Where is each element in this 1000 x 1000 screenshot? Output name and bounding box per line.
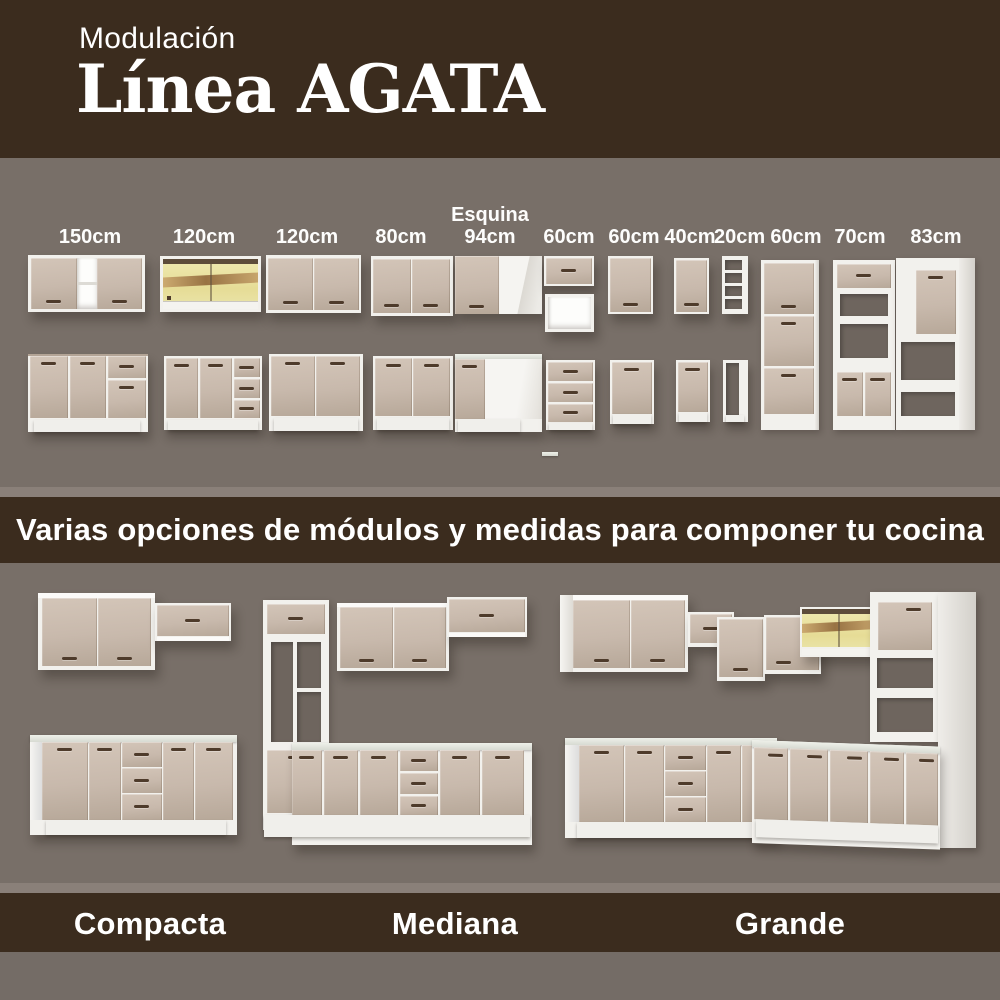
door <box>324 750 358 815</box>
door <box>440 750 480 815</box>
wall-cabinet-60 <box>608 256 653 314</box>
door <box>678 362 708 412</box>
door <box>837 372 863 416</box>
open-shelf <box>77 258 97 309</box>
config-label-compacta: Compacta <box>55 906 245 942</box>
open-niche <box>877 658 933 688</box>
countertop <box>565 738 777 745</box>
module-size-label: 120cm <box>255 202 359 248</box>
door <box>631 600 685 668</box>
drawer <box>122 794 162 820</box>
door <box>166 358 198 418</box>
door <box>413 358 450 416</box>
drawer <box>234 400 260 418</box>
tall-cabinet-60 <box>761 260 819 430</box>
door <box>292 750 322 815</box>
config-label-mediana: Mediana <box>360 906 550 942</box>
door <box>89 742 121 820</box>
countertop-extension <box>542 452 558 456</box>
door <box>719 619 763 677</box>
door <box>42 742 88 820</box>
open-niche <box>877 698 933 732</box>
door <box>830 750 868 823</box>
door <box>625 745 664 822</box>
drawer <box>122 768 162 793</box>
door <box>573 600 630 668</box>
door <box>200 358 232 418</box>
toe-kick <box>726 415 744 422</box>
drawer <box>665 745 706 770</box>
module-size-label: 150cm <box>30 202 150 248</box>
open-shelf-box-60 <box>545 294 594 332</box>
open-shelf-unit-20 <box>722 256 748 314</box>
door <box>271 356 315 416</box>
door <box>268 258 313 310</box>
corner-wall-cabinet-94 <box>455 256 542 314</box>
base-cabinet-60 <box>610 360 654 424</box>
module-size-label: 120cm <box>153 202 255 248</box>
toe-kick <box>549 423 592 430</box>
base-cabinet-120 <box>269 354 363 431</box>
modules-section: 150cm 120cm 120cm 80cm Esquina94cm 60cm … <box>0 158 1000 497</box>
drawer <box>400 750 438 771</box>
base-run-right <box>752 740 940 850</box>
wall-cabinet-80 <box>371 256 453 316</box>
toe-kick <box>168 420 258 430</box>
module-size-label: 70cm <box>829 202 891 248</box>
drawer <box>122 742 162 767</box>
oven-niche <box>840 294 888 316</box>
base-cabinet-150 <box>28 354 148 432</box>
door <box>108 380 146 418</box>
countertop <box>30 735 237 742</box>
door <box>373 259 411 313</box>
corner-panel <box>485 359 542 419</box>
door <box>916 270 956 334</box>
drawer <box>234 379 260 398</box>
corner-base-cabinet-94 <box>455 354 542 432</box>
oven-niche <box>840 324 888 358</box>
open-shelf <box>548 297 591 329</box>
door <box>707 745 741 822</box>
shelf-niche <box>725 286 742 296</box>
base-run-left <box>565 738 777 838</box>
toe-kick <box>377 418 449 430</box>
toe-kick <box>577 822 767 838</box>
door <box>316 356 360 416</box>
door <box>394 607 446 668</box>
base-run <box>292 743 532 845</box>
header-band: Modulación Línea AGATA <box>0 0 1000 158</box>
door <box>314 258 359 310</box>
door <box>790 748 828 821</box>
shelf-niche <box>725 260 742 270</box>
wall-extension-cabinet <box>155 603 231 641</box>
module-size-label: 60cm <box>541 202 597 248</box>
drawer-base-cabinet-60 <box>546 360 595 430</box>
drawer <box>665 797 706 822</box>
door <box>97 258 142 309</box>
drawer <box>548 404 593 422</box>
tall-tower-front <box>870 592 940 742</box>
drawer <box>400 773 438 794</box>
base-cabinet-120-drawers <box>164 356 262 430</box>
configuration-labels-band: Compacta Mediana Grande <box>0 893 1000 952</box>
door <box>610 258 651 312</box>
door <box>375 358 412 416</box>
side-panel <box>815 260 819 430</box>
wall-cabinet <box>560 595 688 672</box>
side-panel <box>30 742 42 820</box>
tall-tower-side-panel <box>938 592 976 848</box>
drawer <box>234 358 260 377</box>
open-niche <box>726 363 739 415</box>
door <box>340 607 393 668</box>
countertop <box>292 743 532 750</box>
door <box>30 356 68 418</box>
page-title: Línea AGATA <box>76 50 544 128</box>
door <box>764 368 814 414</box>
wall-cabinet-40 <box>674 258 709 314</box>
door <box>906 752 938 825</box>
shelf-niche <box>725 273 742 283</box>
door <box>98 598 151 666</box>
door <box>70 356 106 418</box>
door <box>163 742 194 820</box>
door <box>865 372 891 416</box>
module-size-label: 20cm <box>714 202 764 248</box>
toe-kick <box>458 419 520 432</box>
door <box>360 750 398 815</box>
side-panel <box>959 258 975 430</box>
toe-kick <box>274 418 358 431</box>
door <box>412 259 450 313</box>
door <box>612 362 652 414</box>
door <box>42 598 97 666</box>
glass-wall-cabinet-120 <box>160 256 261 312</box>
toe-kick <box>46 820 226 835</box>
wall-cabinet <box>337 603 449 671</box>
corner-wall-cabinet <box>717 617 765 681</box>
drawer <box>400 796 438 815</box>
drawer <box>665 771 706 796</box>
wall-cabinet-150 <box>28 255 145 312</box>
door <box>267 604 325 634</box>
fridge-niche <box>901 342 955 380</box>
wall-cabinet <box>38 593 155 670</box>
door <box>157 605 229 636</box>
door <box>449 599 525 632</box>
door <box>31 258 77 309</box>
module-size-label: 83cm <box>898 202 974 248</box>
module-size-label: 40cm <box>664 202 716 248</box>
toe-kick <box>679 412 707 422</box>
door <box>482 750 524 815</box>
module-size-label: 60cm <box>606 202 662 248</box>
config-label-grande: Grande <box>695 906 885 942</box>
door <box>195 742 233 820</box>
toe-kick <box>613 414 651 424</box>
side-panel <box>565 745 579 822</box>
base-cabinet-80 <box>373 356 453 430</box>
floor-highlight <box>0 883 1000 893</box>
base-run <box>30 735 237 835</box>
door <box>837 264 891 288</box>
wall-extension-cabinet <box>447 597 527 637</box>
banner-band: Varias opciones de módulos y medidas par… <box>0 497 1000 563</box>
door <box>579 745 624 822</box>
drawer <box>548 362 593 381</box>
corner-panel <box>499 256 542 314</box>
drawer <box>548 383 593 402</box>
footer-strip <box>0 952 1000 1000</box>
toe-kick <box>34 420 140 432</box>
glass-doors <box>802 609 875 647</box>
door <box>676 260 707 312</box>
door <box>455 256 499 314</box>
glass-wall-cabinet <box>800 607 877 657</box>
toe-kick <box>264 815 530 837</box>
base-cabinet-40 <box>676 360 710 422</box>
glass-doors <box>163 259 258 302</box>
floor-highlight <box>0 487 1000 497</box>
door <box>764 316 814 366</box>
door <box>754 747 788 820</box>
configurations-section <box>0 563 1000 893</box>
side-panel <box>560 595 573 672</box>
wall-cabinet-120 <box>266 255 361 313</box>
banner-text: Varias opciones de módulos y medidas par… <box>16 512 984 548</box>
flip-wall-cabinet-60 <box>544 256 594 286</box>
module-size-label: 60cm <box>765 202 827 248</box>
promo-image: Modulación Línea AGATA 150cm 120cm 120cm… <box>0 0 1000 1000</box>
door <box>764 263 814 314</box>
open-niche <box>271 642 293 742</box>
door <box>878 602 932 650</box>
open-niche <box>297 692 321 742</box>
door <box>455 359 485 419</box>
module-size-label: Esquina94cm <box>442 202 538 248</box>
module-size-label: 80cm <box>356 202 446 248</box>
drawer <box>108 356 146 378</box>
fridge-niche <box>901 392 955 416</box>
flip-door <box>546 258 592 284</box>
open-base-unit-20 <box>723 360 748 422</box>
open-niche <box>297 642 321 688</box>
fridge-surround-83 <box>896 258 975 430</box>
oven-tower-70 <box>833 260 895 430</box>
door <box>870 751 904 824</box>
shelf-niche <box>725 299 742 309</box>
